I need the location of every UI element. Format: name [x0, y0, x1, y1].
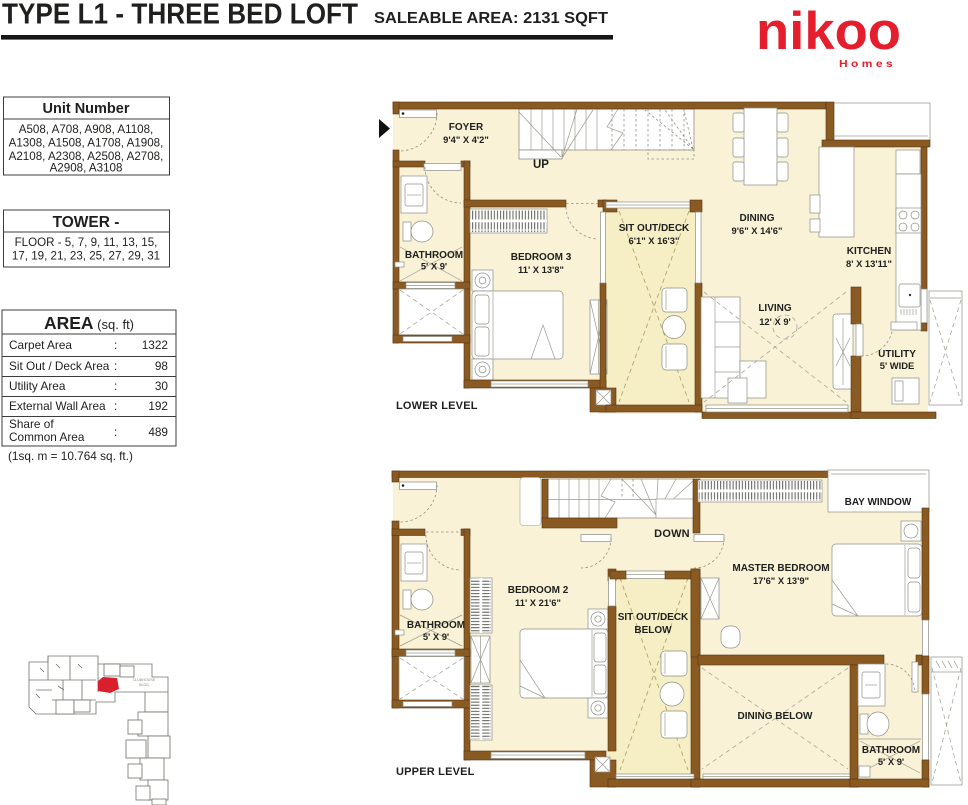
svg-text:nikoo: nikoo: [756, 2, 901, 61]
svg-text:Share of: Share of: [9, 417, 54, 431]
svg-text:11' X 21'6": 11' X 21'6": [515, 597, 561, 608]
svg-text::: :: [114, 425, 117, 439]
svg-text:A2908, A3108: A2908, A3108: [50, 162, 123, 175]
svg-text:9'6" X 14'6": 9'6" X 14'6": [732, 225, 783, 236]
svg-text:CLUBHOUSE: CLUBHOUSE: [133, 678, 156, 682]
svg-text:KITCHEN: KITCHEN: [847, 246, 891, 257]
svg-text:BATHROOM: BATHROOM: [407, 620, 465, 631]
svg-text:UPPER LEVEL: UPPER LEVEL: [396, 766, 475, 778]
svg-text:LIVING: LIVING: [758, 303, 792, 314]
svg-text:BLDG: BLDG: [139, 683, 149, 687]
svg-text:TYPE L1 - THREE BED LOFT: TYPE L1 - THREE BED LOFT: [2, 0, 359, 31]
svg-text:BATHROOM: BATHROOM: [405, 250, 463, 261]
svg-text:Common Area: Common Area: [9, 430, 85, 444]
svg-text:6'1" X 16'3": 6'1" X 16'3": [629, 235, 680, 246]
svg-text:FOYER: FOYER: [449, 122, 484, 133]
svg-text:BEDROOM 3: BEDROOM 3: [511, 252, 572, 263]
svg-text:17'6" X 13'9": 17'6" X 13'9": [753, 575, 809, 586]
svg-text:11' X 13'8": 11' X 13'8": [518, 264, 564, 275]
svg-text:BAY WINDOW: BAY WINDOW: [845, 497, 912, 508]
svg-text::: :: [114, 359, 117, 373]
svg-text:8' X 13'11": 8' X 13'11": [846, 258, 892, 269]
svg-text:5' X 9': 5' X 9': [421, 261, 447, 272]
svg-text:A508, A708, A908, A1108,: A508, A708, A908, A1108,: [19, 123, 154, 136]
svg-text:30: 30: [155, 379, 169, 393]
svg-text:Utility Area: Utility Area: [9, 379, 66, 393]
svg-text:5' X 9': 5' X 9': [423, 631, 449, 642]
svg-text::: :: [114, 338, 117, 352]
svg-text:TOWER -: TOWER -: [53, 214, 120, 231]
svg-text:98: 98: [155, 359, 169, 373]
svg-text:BEDROOM 2: BEDROOM 2: [508, 585, 569, 596]
svg-text:489: 489: [148, 425, 168, 439]
svg-text:UP: UP: [533, 159, 549, 171]
svg-text::: :: [114, 379, 117, 393]
svg-text:DOWN: DOWN: [654, 528, 690, 540]
svg-text:A1308, A1508, A1708, A1908,: A1308, A1508, A1708, A1908,: [9, 137, 164, 150]
svg-text:Carpet Area: Carpet Area: [9, 338, 72, 352]
svg-text:Unit Number: Unit Number: [43, 101, 130, 117]
svg-text:(1sq. m = 10.764 sq. ft.): (1sq. m = 10.764 sq. ft.): [8, 449, 133, 463]
svg-text:SIT OUT/DECK: SIT OUT/DECK: [618, 612, 689, 623]
svg-text:Homes: Homes: [839, 58, 896, 70]
svg-text:5' X 9': 5' X 9': [878, 756, 904, 767]
svg-text:DINING BELOW: DINING BELOW: [738, 711, 814, 722]
svg-text:5' WIDE: 5' WIDE: [880, 360, 915, 371]
svg-text:9'4" X 4'2": 9'4" X 4'2": [443, 134, 489, 145]
svg-text:BATHROOM: BATHROOM: [862, 745, 920, 756]
svg-text:SALEABLE AREA: 2131 SQFT: SALEABLE AREA: 2131 SQFT: [374, 10, 609, 27]
svg-text:SIT OUT/DECK: SIT OUT/DECK: [619, 223, 690, 234]
svg-text:17, 19, 21, 23, 25, 27, 29, 31: 17, 19, 21, 23, 25, 27, 29, 31: [12, 250, 160, 263]
svg-text::: :: [114, 399, 117, 413]
svg-text:Sit Out / Deck Area: Sit Out / Deck Area: [9, 359, 110, 373]
svg-text:FLOOR - 5, 7, 9, 11, 13, 15,: FLOOR - 5, 7, 9, 11, 13, 15,: [15, 236, 158, 249]
svg-text:1322: 1322: [142, 338, 168, 352]
svg-text:UTILITY: UTILITY: [878, 349, 916, 360]
svg-text:BELOW: BELOW: [634, 625, 672, 636]
svg-text:192: 192: [148, 399, 168, 413]
svg-text:MASTER BEDROOM: MASTER BEDROOM: [732, 563, 829, 574]
svg-text:External Wall Area: External Wall Area: [9, 399, 106, 413]
svg-text:DINING: DINING: [740, 213, 775, 224]
svg-text:LOWER LEVEL: LOWER LEVEL: [396, 400, 478, 412]
svg-text:12' X 9': 12' X 9': [759, 316, 791, 327]
